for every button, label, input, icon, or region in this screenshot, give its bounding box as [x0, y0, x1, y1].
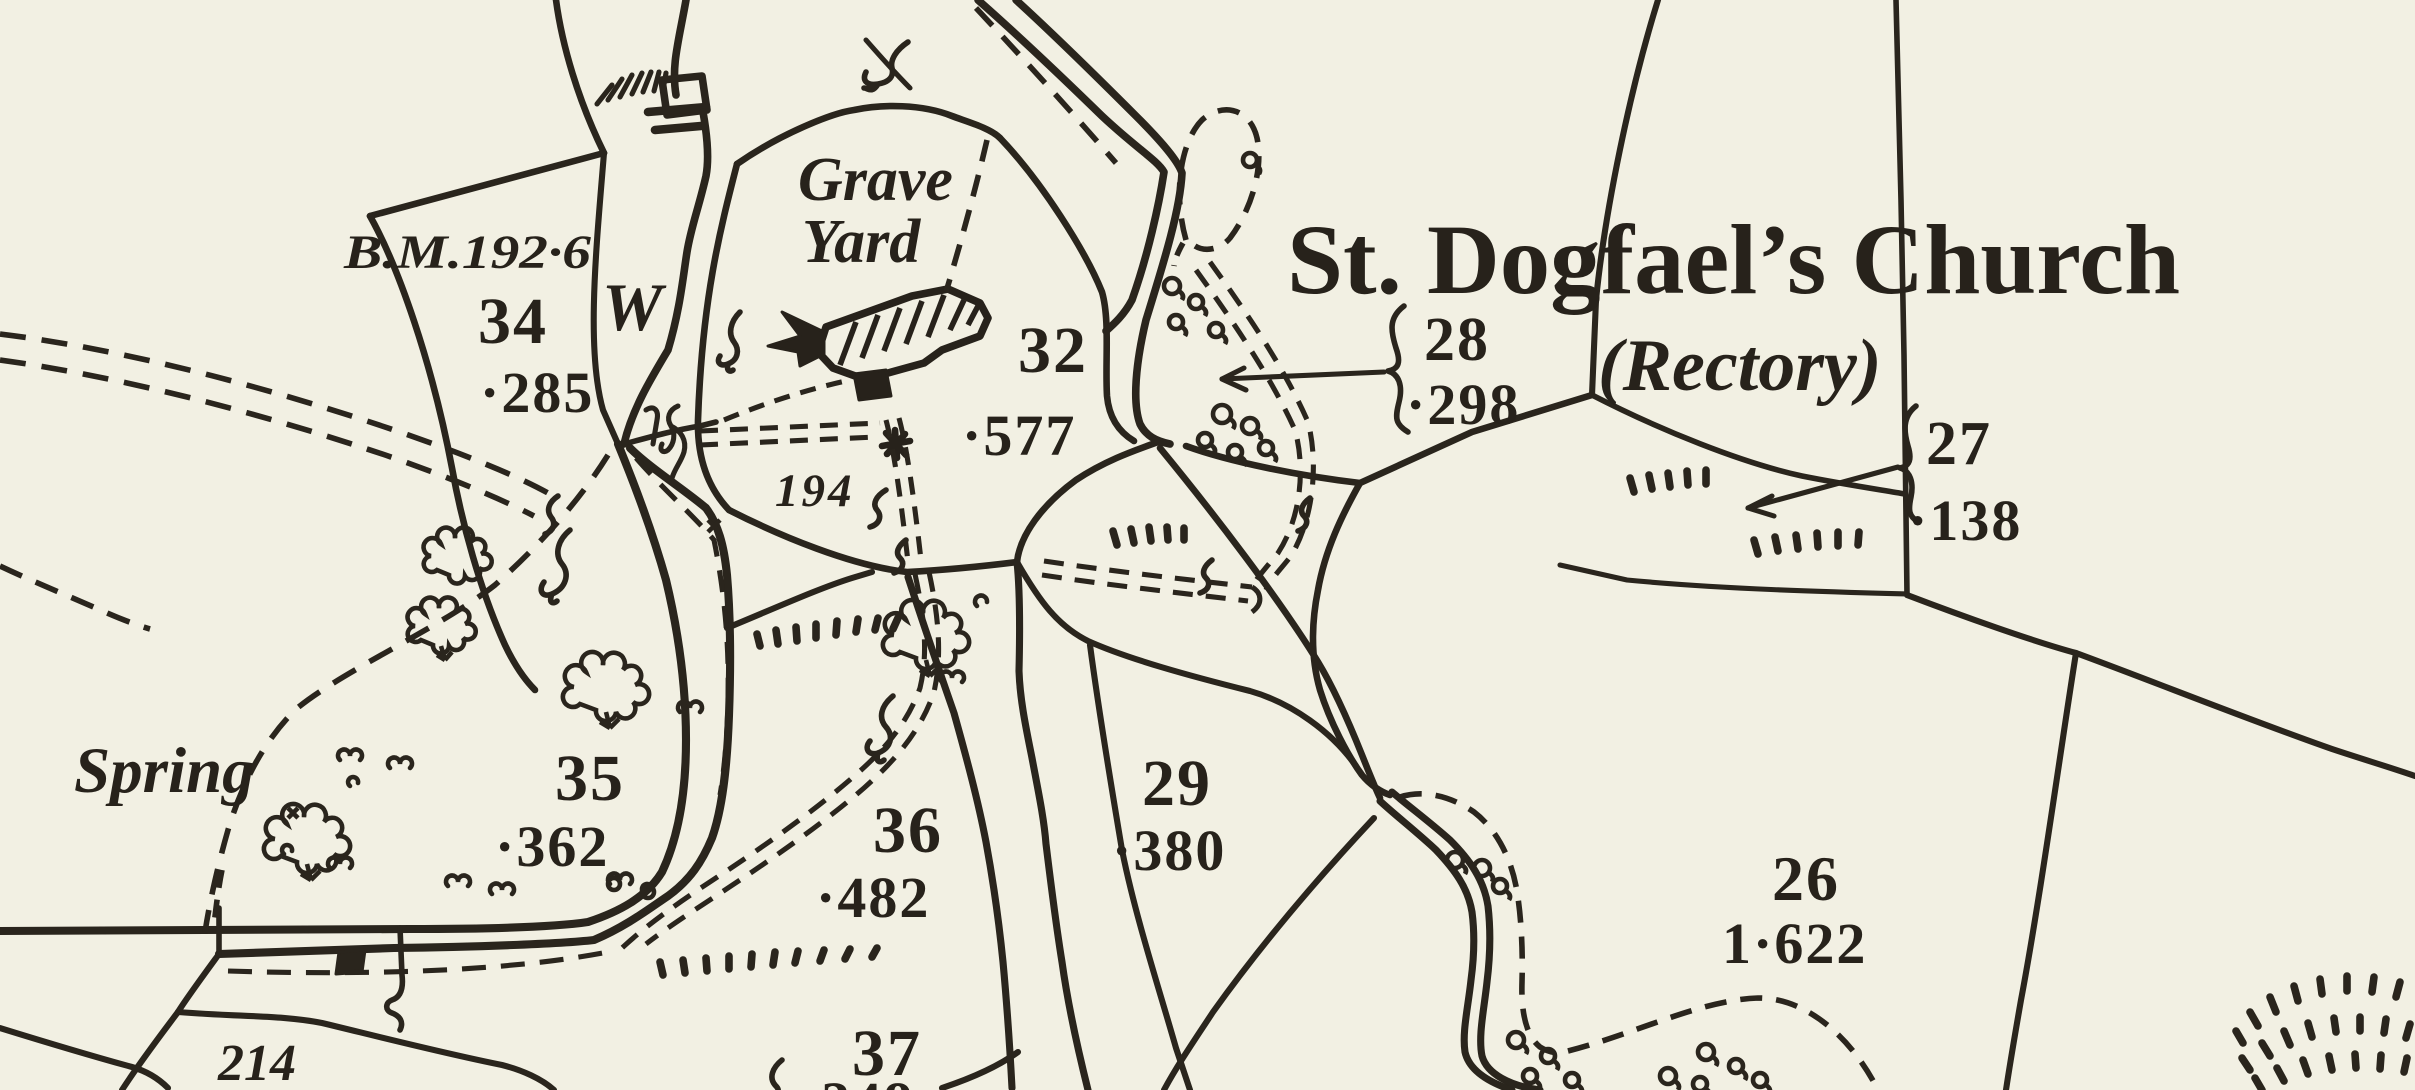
- svg-text:·482: ·482: [816, 865, 930, 930]
- svg-text:32: 32: [1018, 314, 1088, 387]
- svg-text:·298: ·298: [1406, 372, 1520, 437]
- svg-text:Grave: Grave: [798, 146, 953, 214]
- svg-text:·362: ·362: [495, 814, 609, 879]
- svg-text:·577: ·577: [962, 403, 1076, 468]
- svg-text:194: 194: [775, 465, 855, 517]
- svg-text:B.M.192·6: B.M.192·6: [343, 226, 591, 279]
- svg-text:1·622: 1·622: [1722, 911, 1867, 976]
- svg-text:·348: ·348: [800, 1070, 914, 1090]
- svg-text:214: 214: [217, 1035, 296, 1090]
- svg-text:(Rectory): (Rectory): [1598, 325, 1882, 407]
- svg-text:St. Dogfael’s Church: St. Dogfael’s Church: [1287, 204, 2180, 315]
- svg-text:36: 36: [873, 794, 943, 867]
- svg-text:29: 29: [1142, 747, 1212, 820]
- svg-text:·380: ·380: [1112, 818, 1226, 883]
- svg-text:28: 28: [1424, 306, 1490, 374]
- svg-text:26: 26: [1772, 843, 1840, 914]
- svg-text:W: W: [602, 269, 667, 345]
- svg-text:·285: ·285: [480, 360, 594, 425]
- svg-text:·138: ·138: [1908, 488, 2022, 553]
- svg-text:34: 34: [478, 285, 548, 358]
- svg-text:Spring: Spring: [74, 735, 255, 807]
- svg-text:Yard: Yard: [802, 208, 921, 276]
- svg-text:35: 35: [555, 742, 625, 815]
- svg-text:27: 27: [1926, 410, 1992, 478]
